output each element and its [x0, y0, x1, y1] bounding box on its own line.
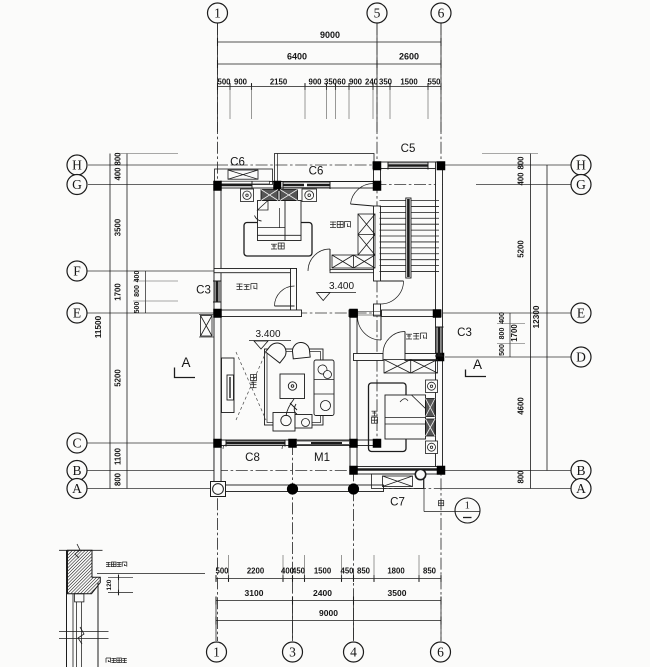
svg-text:C5: C5	[401, 143, 416, 155]
svg-text:120: 120	[106, 579, 113, 590]
svg-text:12300: 12300	[532, 305, 541, 328]
svg-text:3: 3	[289, 645, 296, 660]
svg-text:5: 5	[374, 6, 381, 21]
svg-text:9000: 9000	[320, 30, 340, 40]
svg-text:400: 400	[499, 312, 506, 324]
svg-text:D: D	[576, 350, 586, 365]
svg-text:E: E	[577, 306, 585, 321]
svg-text:H: H	[72, 158, 82, 173]
svg-text:E: E	[73, 306, 81, 321]
svg-text:900: 900	[234, 77, 248, 86]
svg-text:850: 850	[357, 567, 371, 576]
svg-text:3.400: 3.400	[329, 281, 354, 292]
svg-text:450: 450	[292, 567, 306, 576]
svg-text:6400: 6400	[287, 52, 307, 62]
svg-text:350: 350	[379, 77, 393, 86]
svg-text:C6: C6	[230, 157, 245, 169]
svg-text:2200: 2200	[247, 567, 265, 576]
svg-text:400: 400	[114, 167, 123, 181]
svg-text:1500: 1500	[400, 77, 418, 86]
svg-text:550: 550	[427, 77, 441, 86]
svg-text:A: A	[576, 481, 586, 496]
svg-text:G: G	[576, 177, 586, 192]
svg-text:H: H	[576, 158, 586, 173]
svg-text:5200: 5200	[114, 369, 123, 387]
svg-text:240: 240	[365, 77, 379, 86]
svg-text:800: 800	[517, 156, 526, 170]
svg-text:400: 400	[517, 172, 526, 186]
svg-text:2400: 2400	[313, 588, 332, 598]
svg-text:1: 1	[213, 645, 220, 660]
svg-text:C8: C8	[245, 452, 260, 464]
svg-text:800: 800	[114, 152, 123, 166]
svg-text:2600: 2600	[399, 52, 419, 62]
svg-text:1: 1	[465, 501, 470, 512]
svg-text:60: 60	[337, 77, 346, 86]
svg-text:500: 500	[215, 567, 229, 576]
svg-text:B: B	[576, 463, 585, 478]
svg-text:2150: 2150	[270, 77, 288, 86]
svg-text:1: 1	[214, 6, 221, 21]
svg-text:9000: 9000	[319, 608, 338, 618]
svg-text:4: 4	[350, 645, 357, 660]
svg-text:1500: 1500	[314, 567, 332, 576]
svg-text:800: 800	[517, 470, 526, 484]
svg-text:B: B	[72, 463, 81, 478]
svg-text:C: C	[72, 436, 81, 451]
svg-text:4600: 4600	[517, 397, 526, 415]
svg-text:3100: 3100	[245, 588, 264, 598]
svg-text:850: 850	[423, 567, 437, 576]
svg-text:3.400: 3.400	[255, 329, 280, 340]
svg-text:900: 900	[349, 77, 363, 86]
svg-text:1800: 1800	[387, 567, 405, 576]
svg-text:A: A	[181, 355, 190, 370]
svg-text:C7: C7	[390, 497, 405, 509]
svg-text:800: 800	[134, 285, 141, 297]
svg-text:800: 800	[114, 472, 123, 486]
svg-text:M1: M1	[314, 452, 330, 464]
svg-text:A: A	[72, 481, 82, 496]
svg-text:11500: 11500	[94, 315, 103, 338]
svg-text:450: 450	[340, 567, 354, 576]
svg-text:C3: C3	[457, 327, 472, 339]
svg-text:C6: C6	[309, 166, 324, 178]
svg-text:1700: 1700	[510, 324, 519, 342]
svg-text:3500: 3500	[388, 588, 407, 598]
svg-text:A: A	[473, 357, 482, 372]
svg-text:350: 350	[324, 77, 338, 86]
svg-text:1100: 1100	[114, 447, 123, 465]
svg-text:3500: 3500	[114, 218, 123, 236]
svg-text:800: 800	[499, 328, 506, 340]
svg-text:900: 900	[308, 77, 322, 86]
svg-text:500: 500	[134, 302, 141, 314]
svg-text:500: 500	[217, 77, 231, 86]
svg-text:400: 400	[134, 271, 141, 283]
svg-text:F: F	[73, 264, 81, 279]
svg-text:5200: 5200	[517, 240, 526, 258]
svg-text:500: 500	[499, 344, 506, 356]
svg-text:C3: C3	[196, 285, 211, 297]
svg-text:G: G	[72, 177, 82, 192]
svg-text:6: 6	[438, 6, 445, 21]
svg-text:1700: 1700	[114, 283, 123, 301]
svg-text:6: 6	[437, 645, 444, 660]
